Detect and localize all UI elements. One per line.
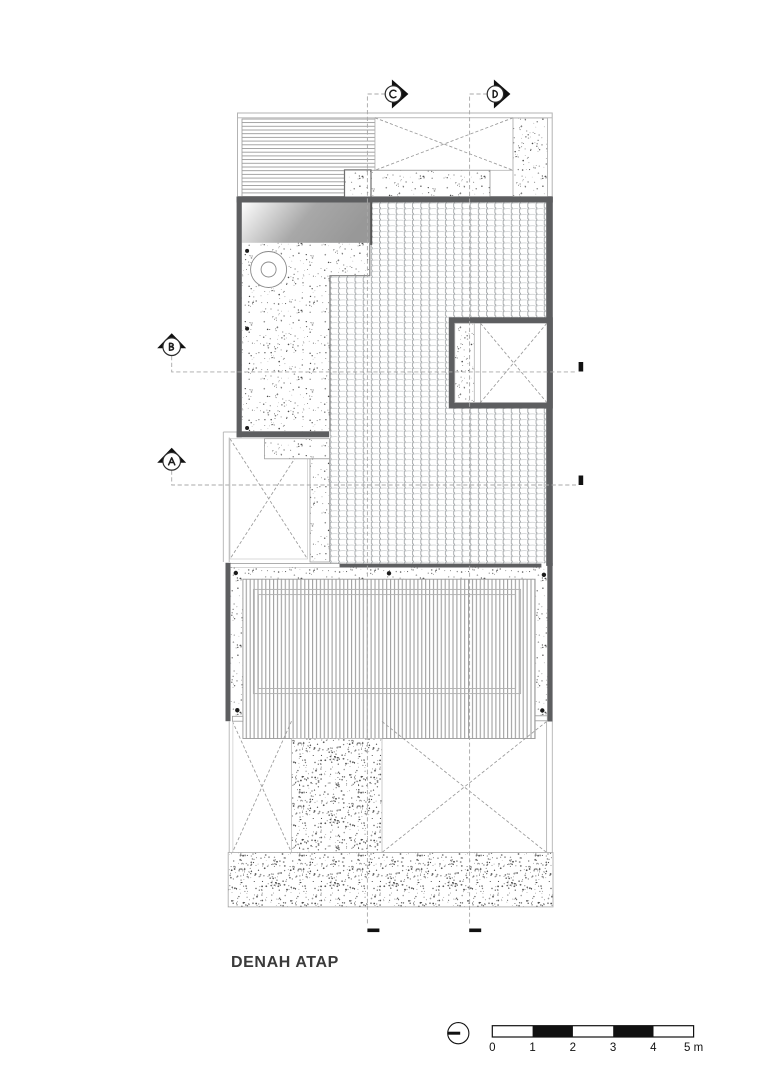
svg-text:5 m: 5 m: [684, 1042, 703, 1054]
svg-text:4: 4: [650, 1042, 657, 1054]
svg-text:0: 0: [489, 1042, 495, 1054]
svg-text:DENAH ATAP: DENAH ATAP: [231, 954, 339, 971]
svg-text:1: 1: [529, 1042, 535, 1054]
svg-text:2: 2: [570, 1042, 576, 1054]
svg-text:3: 3: [610, 1042, 616, 1054]
